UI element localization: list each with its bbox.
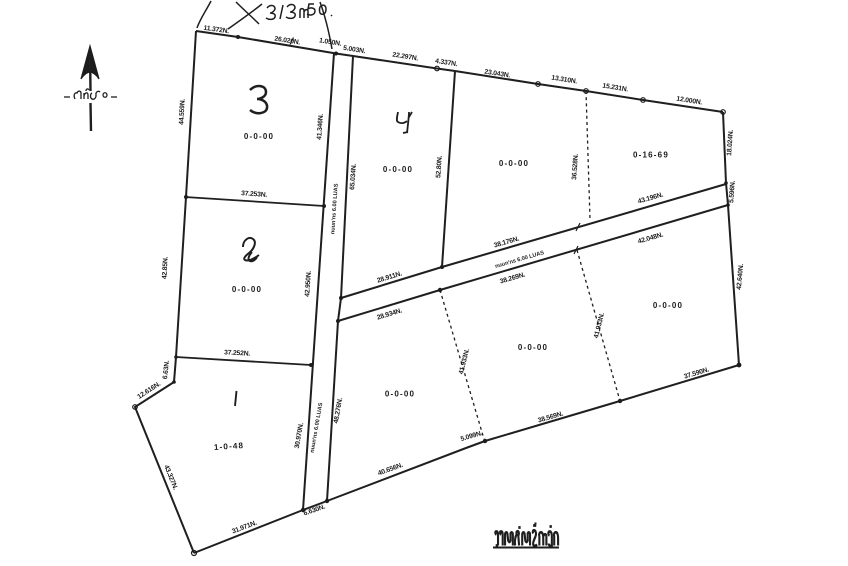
svg-text:0-16-69: 0-16-69 [633, 151, 669, 160]
svg-text:0-0-00: 0-0-00 [518, 343, 548, 352]
svg-text:44.559N.: 44.559N. [178, 98, 186, 125]
svg-text:0-0-00: 0-0-00 [383, 165, 413, 174]
svg-text:0-0-00: 0-0-00 [653, 301, 683, 310]
svg-text:0-0-00: 0-0-00 [232, 285, 262, 294]
svg-text:0-0-00: 0-0-00 [499, 159, 529, 168]
svg-text:0-0-00: 0-0-00 [244, 132, 274, 141]
svg-text:37.252N.: 37.252N. [224, 349, 251, 357]
svg-text:42.85N.: 42.85N. [161, 256, 169, 279]
svg-text:0-0-00: 0-0-00 [385, 390, 415, 399]
